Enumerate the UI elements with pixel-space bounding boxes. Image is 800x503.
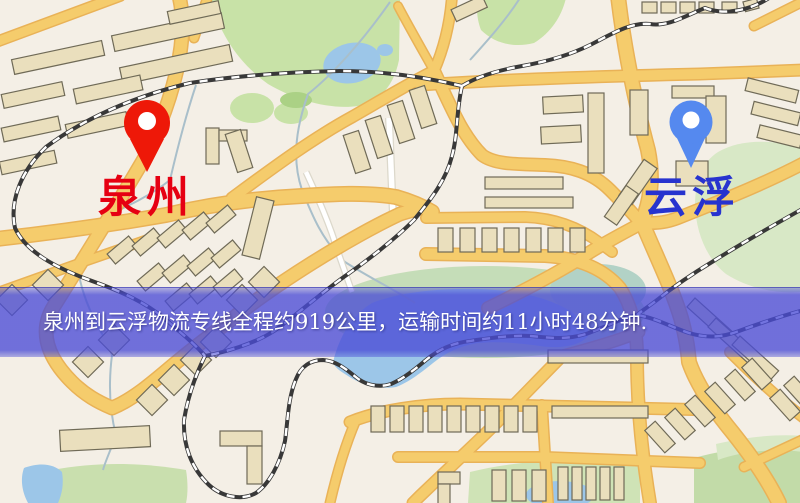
destination-city-label: 云浮 (634, 177, 750, 220)
origin-city-label: 泉州 (86, 177, 206, 220)
route-info-text: 泉州到云浮物流专线全程约919公里，运输时间约11小时48分钟. (0, 288, 800, 357)
map-screenshot[interactable]: 泉州 云浮 泉州到云浮物流专线全程约919公里，运输时间约11小时48分钟. (0, 0, 800, 503)
map-canvas (0, 0, 800, 503)
route-info-banner: 泉州到云浮物流专线全程约919公里，运输时间约11小时48分钟. (0, 287, 800, 357)
